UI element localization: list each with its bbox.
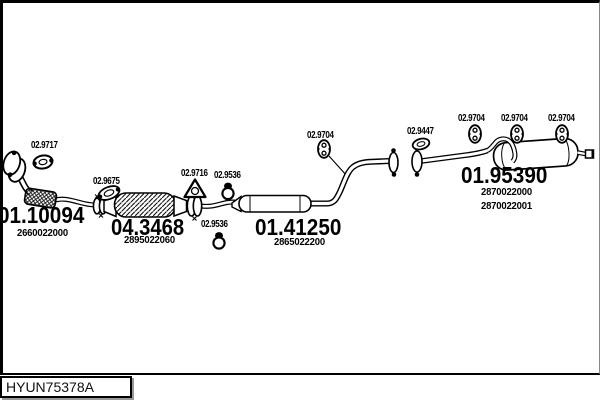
front-pipe-ref: 01.10094 [0,204,84,226]
rubber-hanger-9704-icon-1 [318,140,330,158]
middle-muffler-ref: 01.41250 [255,216,341,238]
drawing-code: HYUN75378A [2,380,94,394]
callout-gasket-9716: 02.9716 [181,169,208,179]
leader-line-hanger [329,156,347,176]
rear-muffler-oem: 2870022000 [481,188,532,198]
callout-ring-9536-1: 02.9536 [214,171,241,181]
front-flange [0,149,30,184]
gasket-9717-icon [31,154,54,171]
middle-muffler-oem: 2865022200 [274,238,325,248]
rubber-hanger-9704-icon-4 [556,125,568,143]
exhaust-line-art [0,0,600,400]
ring-hanger-9536-icon-2 [213,232,224,248]
rear-muffler-ref: 01.95390 [461,164,547,186]
callout-gasket-9675: 02.9675 [93,177,120,187]
rubber-hanger-9704-icon-2 [469,125,481,143]
callout-hanger-9704-4: 02.9704 [548,114,575,124]
rear-muffler-oem-alt: 2870022001 [481,202,532,212]
rear-pipe [422,151,488,162]
middle-muffler [232,196,311,213]
gasket-9716-icon [185,180,206,198]
callout-gasket-9717: 02.9717 [31,141,58,151]
callout-ring-9536-2: 02.9536 [201,220,228,230]
rubber-hanger-9704-icon-3 [511,125,523,143]
front-pipe-oem: 2660022000 [17,229,68,239]
callout-hanger-9704-1: 02.9704 [307,131,334,141]
callout-hanger-9704-2: 02.9704 [458,114,485,124]
callout-gasket-9447: 02.9447 [407,127,434,137]
drawing-code-box: HYUN75378A [0,376,132,398]
callout-hanger-9704-3: 02.9704 [501,114,528,124]
s-bend-pipe [310,161,389,204]
tailpipe [578,150,594,158]
gasket-9447-icon [411,137,430,151]
mid-flange-joint [389,146,422,177]
ring-hanger-9536-icon-1 [222,183,233,199]
catalyst-oem: 2895022060 [124,236,175,246]
exhaust-parts-diagram: 02.9717 02.9675 02.9716 02.9536 02.9536 … [0,0,600,400]
